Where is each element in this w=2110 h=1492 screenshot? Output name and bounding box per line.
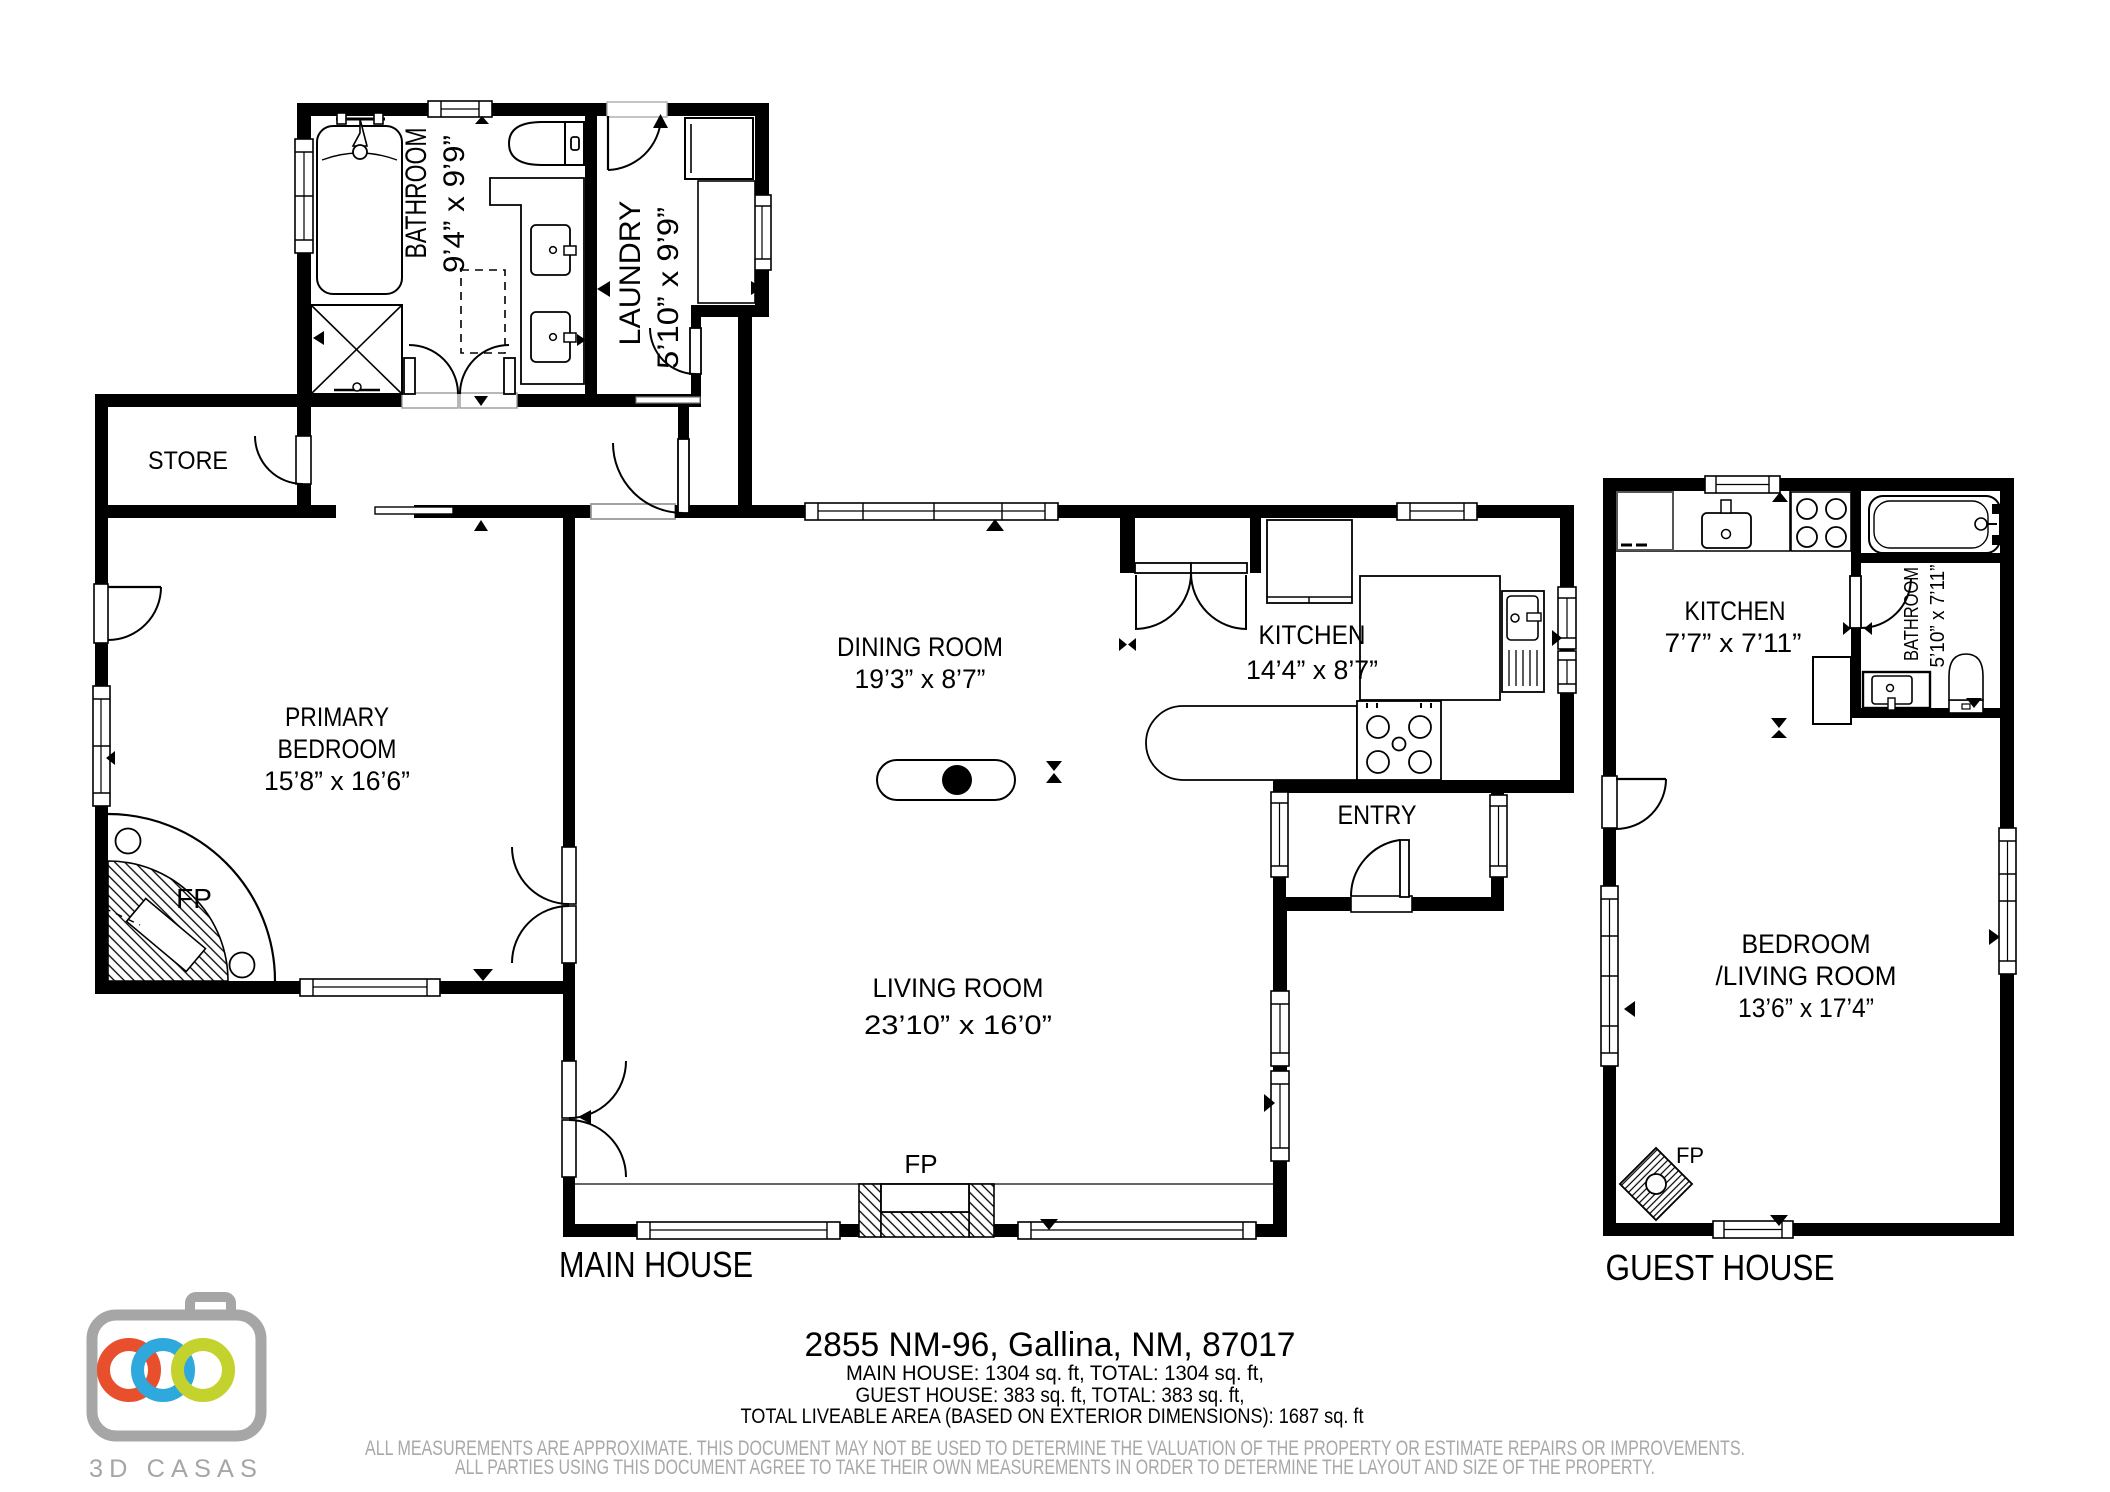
svg-text:7’7” x 7’11”: 7’7” x 7’11” — [1665, 628, 1802, 658]
svg-text:GUEST HOUSE: 383 sq. ft, TOTAL: GUEST HOUSE: 383 sq. ft, TOTAL: 383 sq. … — [856, 1384, 1245, 1407]
svg-text:BATHROOM: BATHROOM — [400, 128, 433, 259]
svg-text:14’4” x 8’7”: 14’4” x 8’7” — [1246, 655, 1378, 685]
svg-text:PRIMARY: PRIMARY — [285, 702, 389, 732]
svg-text:LIVING ROOM: LIVING ROOM — [873, 973, 1044, 1003]
svg-text:FP: FP — [1676, 1143, 1704, 1168]
svg-text:MAIN HOUSE: 1304 sq. ft, TOTAL: MAIN HOUSE: 1304 sq. ft, TOTAL: 1304 sq.… — [846, 1362, 1264, 1385]
svg-text:KITCHEN: KITCHEN — [1685, 596, 1786, 626]
svg-text:2855 NM-96, Gallina, NM, 87017: 2855 NM-96, Gallina, NM, 87017 — [805, 1326, 1296, 1364]
svg-text:BEDROOM: BEDROOM — [278, 734, 397, 764]
svg-text:9’4” x 9’9”: 9’4” x 9’9” — [438, 135, 471, 273]
svg-text:5’10” x 7’11”: 5’10” x 7’11” — [1927, 565, 1949, 668]
svg-text:13’6” x 17’4”: 13’6” x 17’4” — [1738, 993, 1874, 1023]
svg-text:GUEST HOUSE: GUEST HOUSE — [1606, 1247, 1835, 1288]
svg-text:STORE: STORE — [148, 447, 228, 475]
svg-text:19’3” x 8’7”: 19’3” x 8’7” — [855, 664, 986, 694]
svg-text:ENTRY: ENTRY — [1338, 800, 1417, 830]
svg-text:KITCHEN: KITCHEN — [1259, 620, 1366, 650]
svg-text:LAUNDRY: LAUNDRY — [614, 201, 647, 346]
svg-text:FP: FP — [176, 883, 212, 914]
svg-text:BEDROOM: BEDROOM — [1742, 929, 1871, 959]
svg-text:15’8” x 16’6”: 15’8” x 16’6” — [264, 766, 410, 796]
svg-text:BATHROOM: BATHROOM — [1901, 567, 1923, 661]
svg-text:ALL PARTIES USING THIS DOCUMEN: ALL PARTIES USING THIS DOCUMENT AGREE TO… — [455, 1456, 1655, 1479]
svg-text:TOTAL LIVEABLE AREA (BASED ON: TOTAL LIVEABLE AREA (BASED ON EXTERIOR D… — [741, 1405, 1364, 1428]
svg-text:DINING ROOM: DINING ROOM — [837, 632, 1003, 662]
svg-text:3D CASAS: 3D CASAS — [89, 1455, 263, 1483]
svg-text:5’10” x 9’9”: 5’10” x 9’9” — [652, 207, 685, 369]
svg-text:/LIVING ROOM: /LIVING ROOM — [1716, 961, 1897, 991]
svg-text:FP: FP — [904, 1149, 937, 1179]
svg-text:23’10” x 16’0”: 23’10” x 16’0” — [864, 1010, 1052, 1040]
svg-text:MAIN HOUSE: MAIN HOUSE — [559, 1244, 753, 1285]
